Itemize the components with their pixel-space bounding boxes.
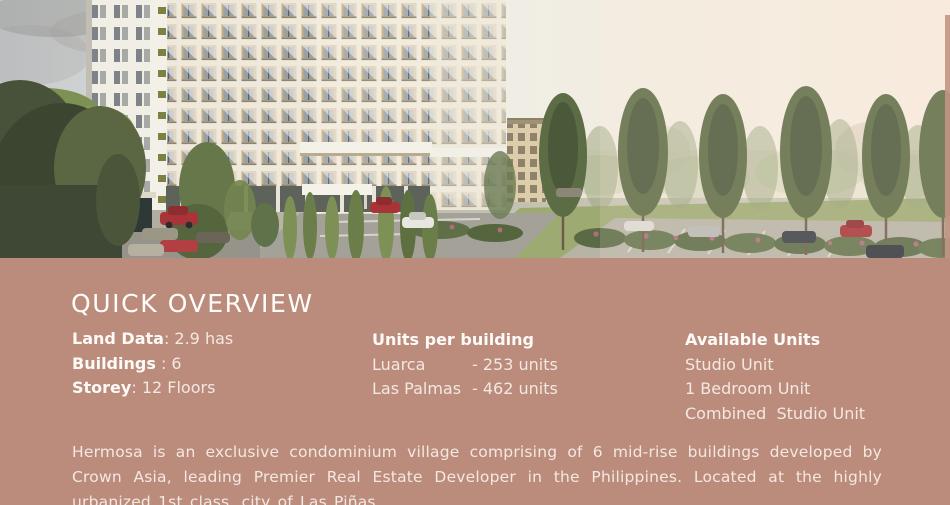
- quick-overview-panel: QUICK OVERVIEW Land Data: 2.9 has Buildi…: [0, 258, 950, 505]
- fact-label: Storey: [72, 378, 131, 397]
- rose-edge-strip: [945, 15, 950, 258]
- fact-storey: Storey: 12 Floors: [72, 376, 233, 401]
- section-title: QUICK OVERVIEW: [71, 289, 314, 318]
- fact-label: Land Data: [72, 329, 164, 348]
- building-name: Las Palmas: [372, 377, 472, 402]
- available-units: Available Units Studio Unit 1 Bedroom Un…: [685, 328, 865, 426]
- brochure-page: QUICK OVERVIEW Land Data: 2.9 has Buildi…: [0, 0, 950, 505]
- available-unit-item: 1 Bedroom Unit: [685, 377, 865, 402]
- project-description: Hermosa is an exclusive condominium vill…: [72, 440, 882, 505]
- land-facts: Land Data: 2.9 has Buildings : 6 Storey:…: [72, 327, 233, 401]
- building-units: - 253 units: [472, 355, 558, 374]
- units-per-building: Units per building Luarca- 253 units Las…: [372, 328, 558, 402]
- units-row-luarca: Luarca- 253 units: [372, 353, 558, 378]
- fact-buildings: Buildings : 6: [72, 352, 233, 377]
- hero-render-image: [0, 0, 950, 258]
- fact-label: Buildings: [72, 354, 156, 373]
- available-units-heading: Available Units: [685, 328, 865, 353]
- building-name: Luarca: [372, 353, 472, 378]
- fact-value: : 6: [156, 354, 182, 373]
- fact-value: : 2.9 has: [164, 329, 233, 348]
- units-heading: Units per building: [372, 328, 558, 353]
- available-unit-item: Studio Unit: [685, 353, 865, 378]
- warm-haze-overlay: [600, 0, 950, 258]
- fact-value: : 12 Floors: [131, 378, 215, 397]
- units-row-las-palmas: Las Palmas- 462 units: [372, 377, 558, 402]
- building-units: - 462 units: [472, 379, 558, 398]
- available-unit-item: Combined Studio Unit: [685, 402, 865, 427]
- fact-land-data: Land Data: 2.9 has: [72, 327, 233, 352]
